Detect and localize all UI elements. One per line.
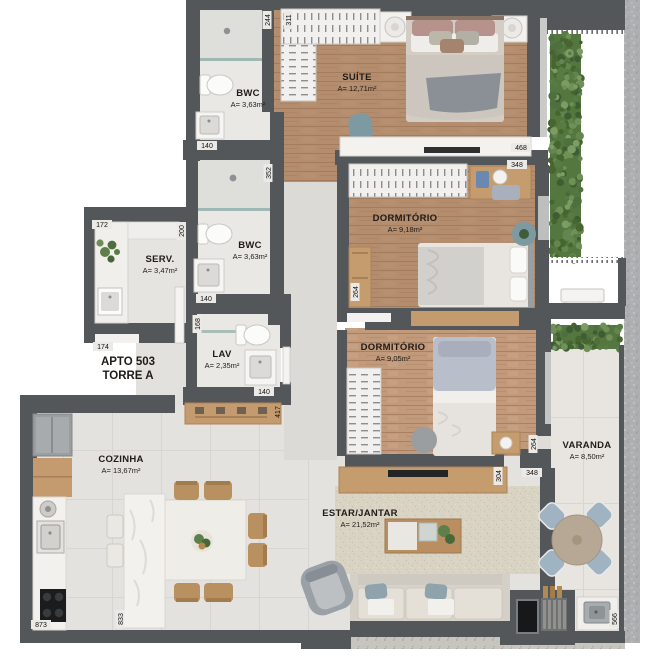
svg-text:873: 873 bbox=[35, 622, 47, 629]
svg-text:TORRE A: TORRE A bbox=[102, 370, 153, 382]
svg-text:DORMITÓRIO: DORMITÓRIO bbox=[361, 341, 426, 353]
svg-text:468: 468 bbox=[515, 145, 527, 152]
svg-text:833: 833 bbox=[118, 613, 125, 625]
svg-text:APTO 503: APTO 503 bbox=[101, 356, 155, 368]
svg-text:LAV: LAV bbox=[212, 349, 232, 360]
svg-text:VARANDA: VARANDA bbox=[563, 440, 612, 451]
svg-text:DORMITÓRIO: DORMITÓRIO bbox=[373, 212, 438, 224]
svg-text:304: 304 bbox=[496, 470, 503, 482]
svg-text:566: 566 bbox=[612, 613, 619, 625]
svg-text:SERV.: SERV. bbox=[146, 254, 175, 265]
svg-text:BWC: BWC bbox=[238, 240, 262, 251]
svg-text:168: 168 bbox=[195, 318, 202, 330]
svg-text:348: 348 bbox=[526, 470, 538, 477]
svg-text:COZINHA: COZINHA bbox=[98, 454, 143, 465]
svg-text:BWC: BWC bbox=[236, 88, 260, 99]
svg-text:A= 3,63m²: A= 3,63m² bbox=[233, 252, 268, 261]
svg-text:140: 140 bbox=[200, 296, 212, 303]
svg-text:140: 140 bbox=[201, 143, 213, 150]
svg-text:A= 9,18m²: A= 9,18m² bbox=[388, 225, 423, 234]
svg-text:A= 13,67m²: A= 13,67m² bbox=[102, 466, 141, 475]
svg-text:264: 264 bbox=[531, 438, 538, 450]
svg-text:200: 200 bbox=[179, 225, 186, 237]
svg-text:244: 244 bbox=[265, 14, 272, 26]
svg-text:A= 9,05m²: A= 9,05m² bbox=[376, 354, 411, 363]
svg-text:172: 172 bbox=[96, 222, 108, 229]
svg-text:A= 2,35m²: A= 2,35m² bbox=[205, 361, 240, 370]
svg-text:264: 264 bbox=[353, 286, 360, 298]
svg-text:311: 311 bbox=[286, 14, 293, 25]
svg-text:A= 12,71m²: A= 12,71m² bbox=[338, 84, 377, 93]
svg-text:140: 140 bbox=[258, 389, 270, 396]
svg-text:A= 8,50m²: A= 8,50m² bbox=[570, 452, 605, 461]
svg-text:174: 174 bbox=[97, 344, 109, 351]
svg-text:SUÍTE: SUÍTE bbox=[342, 72, 371, 83]
svg-text:352: 352 bbox=[266, 167, 273, 179]
svg-text:A= 3,47m²: A= 3,47m² bbox=[143, 266, 178, 275]
svg-text:A= 3,63m²: A= 3,63m² bbox=[231, 100, 266, 109]
svg-text:ESTAR/JANTAR: ESTAR/JANTAR bbox=[322, 508, 398, 519]
svg-text:348: 348 bbox=[511, 162, 523, 169]
svg-text:417: 417 bbox=[275, 406, 282, 418]
svg-text:A= 21,52m²: A= 21,52m² bbox=[341, 520, 380, 529]
